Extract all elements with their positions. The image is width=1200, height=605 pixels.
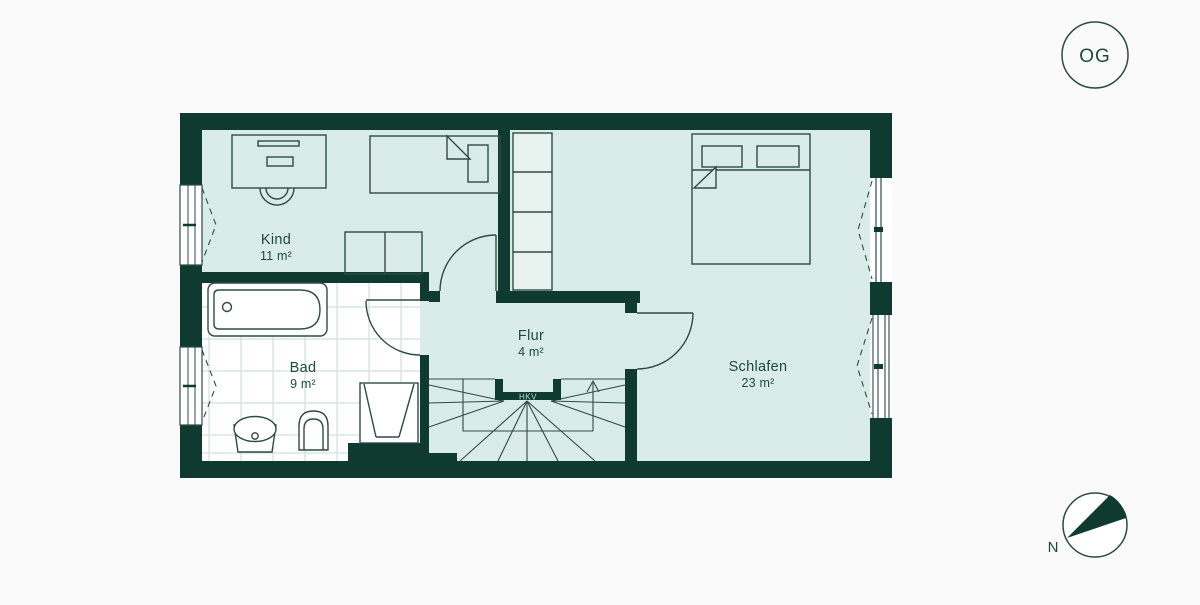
wardrobe xyxy=(513,133,552,290)
room-area: 4 m² xyxy=(518,345,544,359)
room-label-bad: Bad 9 m² xyxy=(290,360,317,391)
floor-plan: HKV Kind 11 m² Bad 9 m² Flur 4 m² Schlaf… xyxy=(180,113,892,478)
room-name: Schlafen xyxy=(729,359,788,375)
shower xyxy=(360,383,418,443)
room-name: Bad xyxy=(290,360,317,376)
room-name: Kind xyxy=(261,232,291,248)
room-area: 9 m² xyxy=(290,377,316,391)
wall-right xyxy=(870,113,892,478)
wall-flur-schlafen xyxy=(625,369,637,462)
floor-badge: OG xyxy=(1062,22,1128,88)
compass: N xyxy=(1048,493,1127,557)
floor-plan-page: HKV Kind 11 m² Bad 9 m² Flur 4 m² Schlaf… xyxy=(0,0,1200,600)
wall-block-stairs xyxy=(429,453,457,462)
wall-flur-north-stub xyxy=(429,291,440,302)
wall-bottom xyxy=(180,461,892,478)
wall-bad-flur-upper xyxy=(420,283,429,301)
room-name: Flur xyxy=(518,328,544,344)
room-area: 11 m² xyxy=(260,249,292,263)
wall-schlafen-stub xyxy=(625,303,637,313)
room-label-kind: Kind 11 m² xyxy=(260,232,292,263)
room-label-flur: Flur 4 m² xyxy=(518,328,544,359)
bathtub xyxy=(208,283,327,336)
wall-block-shower xyxy=(348,443,429,462)
wall-top xyxy=(180,113,892,130)
floor-badge-label: OG xyxy=(1079,46,1111,67)
floor-plan-canvas: HKV Kind 11 m² Bad 9 m² Flur 4 m² Schlaf… xyxy=(0,0,1200,600)
sink xyxy=(234,417,276,453)
window-tick xyxy=(874,364,883,369)
compass-north-label: N xyxy=(1048,539,1059,556)
wall-flur-north xyxy=(496,291,640,303)
toilet xyxy=(299,411,328,450)
window-tick xyxy=(874,227,883,232)
hkv-label: HKV xyxy=(519,393,537,402)
room-area: 23 m² xyxy=(742,376,775,390)
